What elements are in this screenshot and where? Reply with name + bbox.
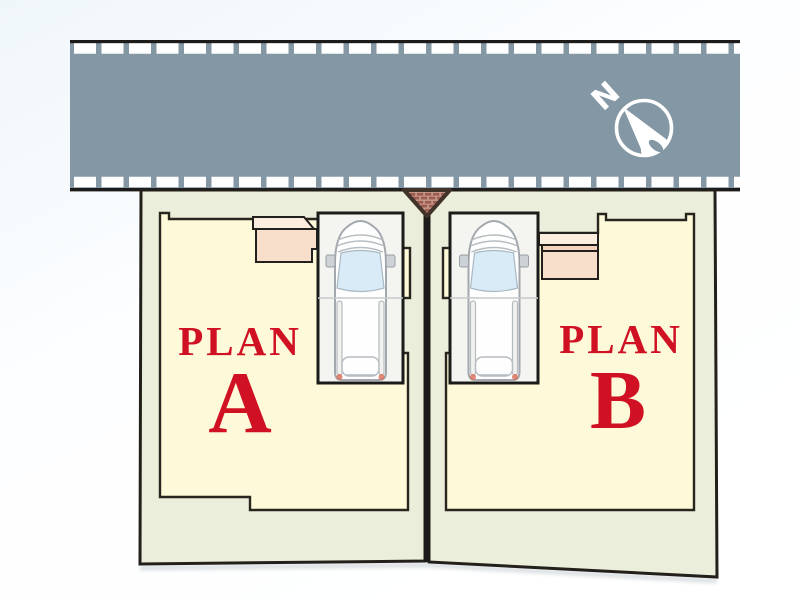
porch-a-upper [253,217,314,229]
plan-b-letter: B [590,354,646,447]
car-a-icon [326,221,395,380]
porch-a-lower [256,229,317,262]
road [70,40,740,191]
car-b-icon [460,221,529,380]
porch-b-lower [542,251,598,279]
porch-a [253,217,317,262]
road-surface [70,43,740,188]
road-edge-top [70,40,740,43]
porch-b-upper [539,233,598,245]
plan-a-letter: A [208,355,272,452]
site-plan: N PLAN A PLAN B [0,0,800,600]
porch-b [539,233,598,279]
